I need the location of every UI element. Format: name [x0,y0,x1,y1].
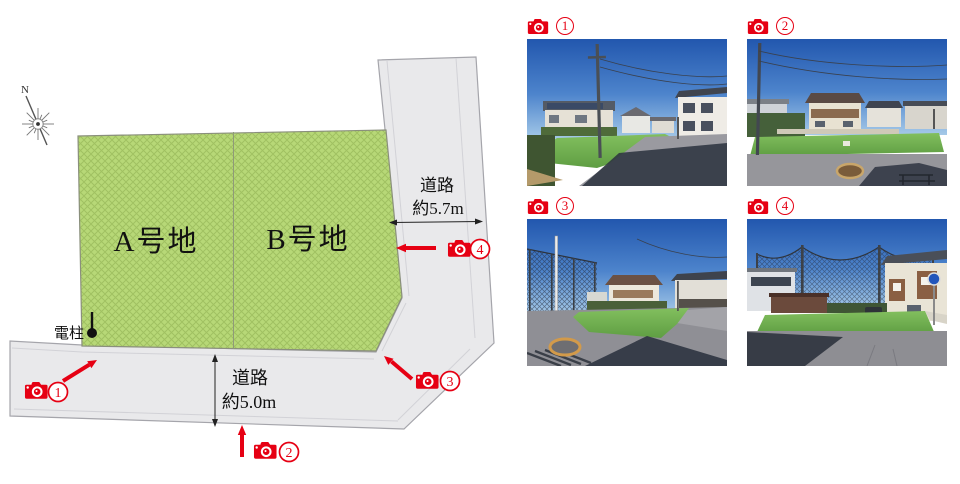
east-road-name: 道路 [420,176,454,195]
site-plan: A号地 B号地 N 電柱 道路 約5. [0,0,527,484]
plot-a-label: A号地 [114,225,199,258]
photo-2-lot-view [747,39,947,186]
camera-icon [747,198,769,215]
land-plot-listing: A号地 B号地 N 電柱 道路 約5. [0,0,960,484]
camera-marker-2: 2 [238,425,299,462]
camera-icon [527,18,549,35]
compass-north-label: N [21,84,29,96]
pole-far [677,117,679,139]
photo-number-2: 2 [776,17,794,35]
camera-number-3: 3 [447,375,454,390]
utility-pole-label: 電柱 [54,325,84,342]
camera-number-1: 1 [55,386,62,401]
photo-label-1: 1 [527,17,727,35]
camera-number-2: 2 [286,446,293,461]
photo-1-lot-view [527,39,727,186]
camera-number-4: 4 [477,243,484,258]
manhole [837,164,863,178]
manhole [550,339,580,355]
hedge [541,127,617,136]
photo-number-4: 4 [776,197,794,215]
photo-label-2: 2 [747,17,947,35]
compass-rose-icon: N [21,84,54,145]
lawn [757,311,935,334]
photo-number-1: 1 [556,17,574,35]
photo-block-2: 2 [747,17,947,186]
photo-label-3: 3 [527,197,727,215]
photo-block-1: 1 [527,17,727,186]
photo-block-4: 4 [747,197,947,366]
block-wall [777,129,899,134]
photo-3-lot-view [527,219,727,366]
photo-number-3: 3 [556,197,574,215]
south-road-width: 約5.0m [222,392,277,412]
lawn-marker [843,141,850,146]
camera-icon [747,18,769,35]
photo-grid: 1 [527,17,947,366]
photo-label-4: 4 [747,197,947,215]
pole-far [933,109,935,129]
camera-icon [527,198,549,215]
pole-far [677,281,679,311]
photo-block-3: 3 [527,197,727,366]
south-road-name: 道路 [232,368,268,388]
plot-b-label: B号地 [266,223,349,256]
photo-4-lot-view [747,219,947,366]
east-road-width: 約5.7m [412,199,463,218]
